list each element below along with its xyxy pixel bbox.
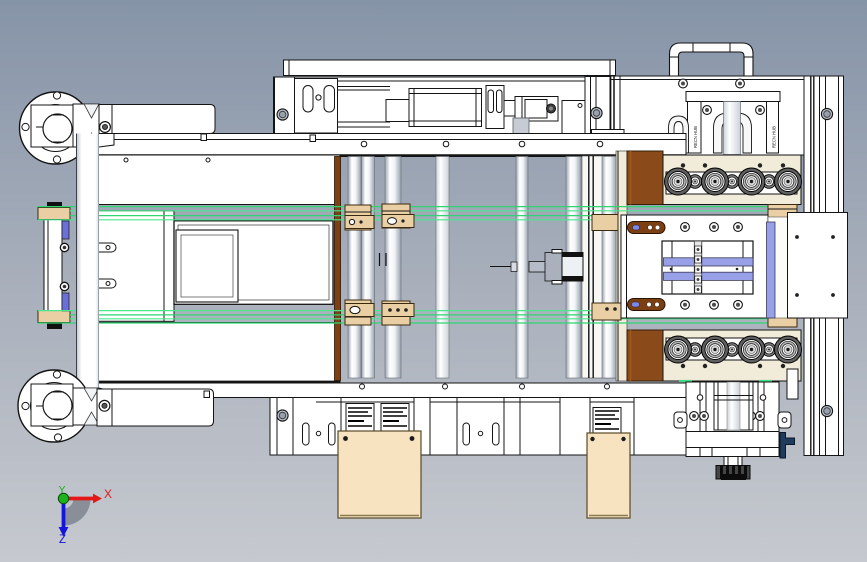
svg-text:RECN HUB: RECN HUB (693, 126, 698, 148)
svg-text:Z: Z (59, 534, 66, 546)
svg-text:X: X (104, 487, 112, 501)
svg-text:RECN HUB: RECN HUB (772, 126, 777, 148)
